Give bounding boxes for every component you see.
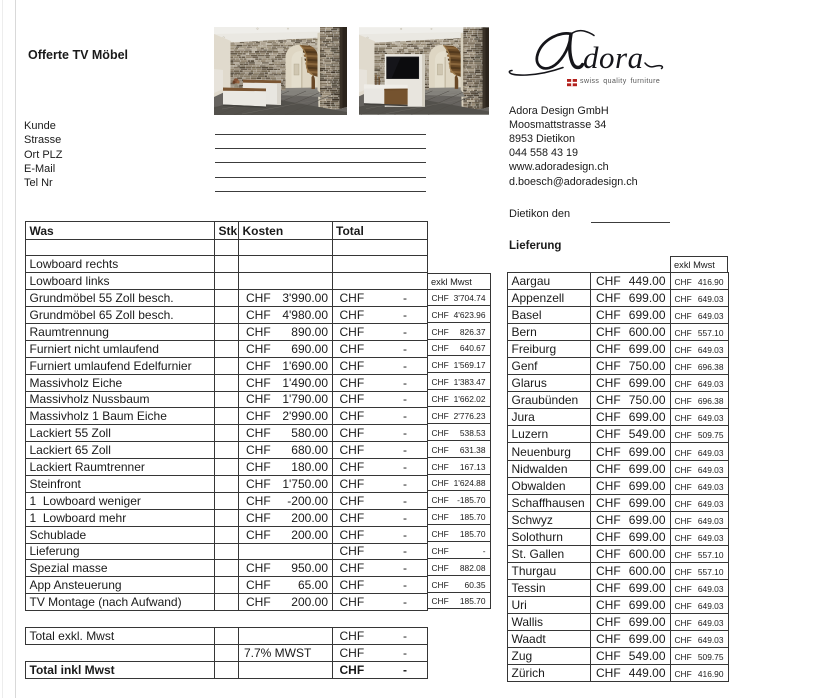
svg-text:dora: dora	[583, 40, 644, 75]
